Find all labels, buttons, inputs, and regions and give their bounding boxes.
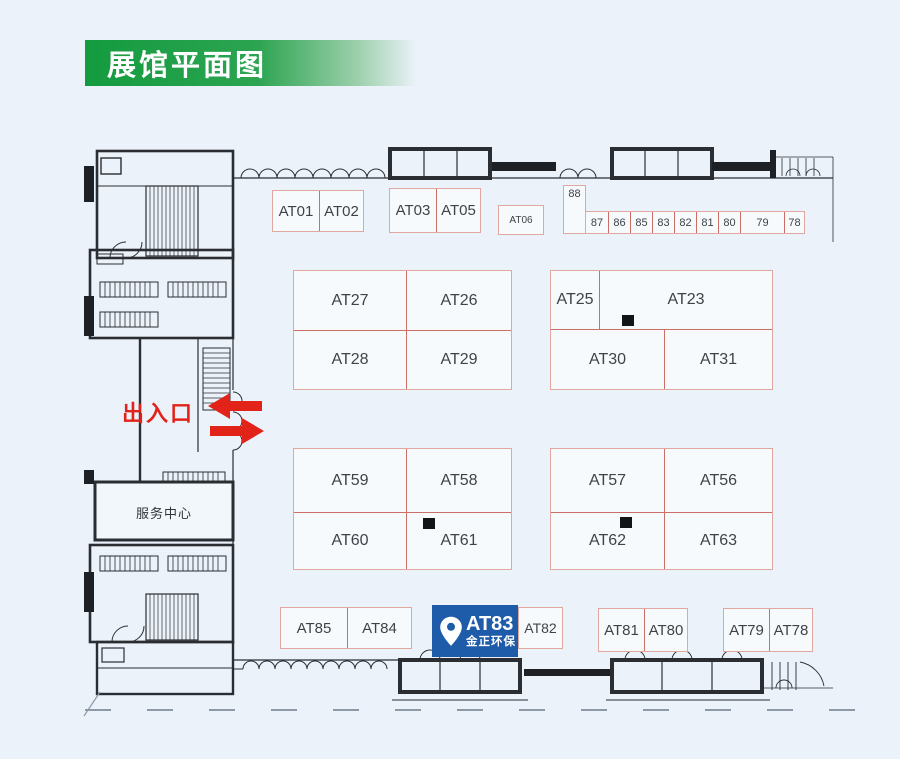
highlight-booth-code: AT83 bbox=[466, 614, 516, 634]
booth-label: AT31 bbox=[700, 351, 737, 369]
booth-label: AT85 bbox=[297, 620, 332, 637]
booth-label: AT03 bbox=[396, 202, 431, 219]
stairs-bottom bbox=[146, 594, 198, 640]
booth-81: 81 bbox=[696, 212, 718, 233]
booth-label: AT81 bbox=[604, 622, 639, 639]
road-dashes bbox=[84, 692, 880, 716]
booth-AT62: AT62 bbox=[551, 513, 664, 569]
booth-label: AT01 bbox=[279, 203, 314, 220]
booth-label: 85 bbox=[635, 217, 647, 229]
booth-block-bottom-b: AT81AT80 bbox=[598, 608, 688, 652]
booth-AT60: AT60 bbox=[294, 513, 406, 569]
booth-79: 79 bbox=[740, 212, 784, 233]
stairs-top bbox=[146, 186, 198, 256]
booth-label: AT30 bbox=[589, 351, 626, 369]
booth-label: AT28 bbox=[331, 351, 368, 369]
booth-block-bottom-a: AT85AT84 bbox=[280, 607, 412, 649]
booth-AT28: AT28 bbox=[294, 331, 406, 389]
booth-block-top-b: AT03AT05 bbox=[389, 188, 481, 233]
booth-label: AT25 bbox=[556, 291, 593, 309]
booth-AT31: AT31 bbox=[664, 330, 772, 389]
booth-block-mid-left: AT27AT26AT28AT29 bbox=[293, 270, 512, 390]
restroom-upper bbox=[84, 250, 233, 338]
booth-block-mid-right: AT25AT23AT30AT31 bbox=[550, 270, 773, 390]
booth-AT85: AT85 bbox=[281, 608, 347, 648]
floorplan-canvas: 展馆平面图 出入口 服务中心 AT01AT02AT03AT05AT0688878… bbox=[0, 0, 900, 759]
booth-AT78: AT78 bbox=[769, 609, 812, 651]
booth-label: 80 bbox=[723, 217, 735, 229]
highlight-booth-at83: AT83 金正环保 bbox=[432, 605, 518, 657]
highlight-company: 金正环保 bbox=[466, 637, 516, 649]
booth-label: AT82 bbox=[524, 620, 556, 636]
booth-block-low-left: AT59AT58AT60AT61 bbox=[293, 448, 512, 570]
booth-label: AT61 bbox=[440, 532, 477, 550]
location-pin-icon bbox=[439, 616, 463, 647]
booth-AT57: AT57 bbox=[551, 449, 664, 512]
pillar-marker bbox=[622, 315, 634, 326]
booth-AT79: AT79 bbox=[724, 609, 769, 651]
highlight-text: AT83 金正环保 bbox=[466, 614, 516, 649]
booth-85: 85 bbox=[630, 212, 652, 233]
booth-AT05: AT05 bbox=[436, 189, 480, 232]
booth-80: 80 bbox=[718, 212, 740, 233]
booth-AT02: AT02 bbox=[319, 191, 363, 231]
wall-left-spine bbox=[233, 178, 242, 658]
booth-AT23: AT23 bbox=[599, 271, 772, 329]
title-banner: 展馆平面图 bbox=[85, 40, 417, 86]
booth-label: AT58 bbox=[440, 472, 477, 490]
booth-AT58: AT58 bbox=[406, 449, 511, 512]
booth-block-booth-88: 88 bbox=[563, 185, 586, 234]
entrance-exit-label: 出入口 bbox=[122, 396, 194, 428]
booth-label: 86 bbox=[613, 217, 625, 229]
booth-AT61: AT61 bbox=[406, 513, 511, 569]
booth-label: 78 bbox=[788, 217, 800, 229]
booth-label: AT80 bbox=[649, 622, 684, 639]
entrance-arrows bbox=[208, 393, 264, 444]
booth-label: AT23 bbox=[667, 291, 704, 309]
booth-AT56: AT56 bbox=[664, 449, 772, 512]
booth-83: 83 bbox=[652, 212, 674, 233]
booth-label: AT27 bbox=[331, 292, 368, 310]
booth-label: AT26 bbox=[440, 292, 477, 310]
booth-block-top-a: AT01AT02 bbox=[272, 190, 364, 232]
booth-label: AT29 bbox=[440, 351, 477, 369]
booth-block-bottom-c: AT79AT78 bbox=[723, 608, 813, 652]
booth-label: AT78 bbox=[774, 622, 809, 639]
booth-label: AT63 bbox=[700, 532, 737, 550]
booth-label: 83 bbox=[657, 217, 669, 229]
booth-86: 86 bbox=[608, 212, 630, 233]
booth-AT80: AT80 bbox=[644, 609, 687, 651]
wall-bottom bbox=[233, 650, 833, 700]
pillar-marker bbox=[423, 518, 435, 529]
booth-block-strip-87-78: 878685838281807978 bbox=[585, 211, 805, 234]
booth-label: 82 bbox=[679, 217, 691, 229]
booth-block-low-right: AT57AT56AT62AT63 bbox=[550, 448, 773, 570]
booth-label: AT59 bbox=[331, 472, 368, 490]
booth-78: 78 bbox=[784, 212, 804, 233]
booth-82: 82 bbox=[674, 212, 696, 233]
booth-label: AT84 bbox=[362, 620, 397, 637]
booth-label: 81 bbox=[701, 217, 713, 229]
booth-label: AT56 bbox=[700, 472, 737, 490]
booth-87: 87 bbox=[586, 212, 608, 233]
booth-AT82: AT82 bbox=[519, 608, 562, 648]
booth-AT26: AT26 bbox=[406, 271, 511, 330]
booth-label: 79 bbox=[756, 217, 768, 229]
booth-label: 87 bbox=[591, 217, 603, 229]
booth-label: AT60 bbox=[331, 532, 368, 550]
booth-label: AT02 bbox=[324, 203, 359, 220]
booth-AT01: AT01 bbox=[273, 191, 319, 231]
booth-AT84: AT84 bbox=[347, 608, 411, 648]
booth-label: AT79 bbox=[729, 622, 764, 639]
booth-block-bottom-82: AT82 bbox=[518, 607, 563, 649]
booth-label: AT06 bbox=[509, 215, 532, 226]
arrow-right-icon bbox=[210, 418, 264, 444]
booth-AT63: AT63 bbox=[664, 513, 772, 569]
booth-AT06: AT06 bbox=[499, 206, 543, 234]
pillar-marker bbox=[620, 517, 632, 528]
service-center-label: 服务中心 bbox=[95, 503, 233, 522]
booth-label: AT05 bbox=[441, 202, 476, 219]
booth-label: 88 bbox=[568, 188, 580, 200]
booth-AT30: AT30 bbox=[551, 330, 664, 389]
booth-AT59: AT59 bbox=[294, 449, 406, 512]
booth-AT25: AT25 bbox=[551, 271, 599, 329]
booth-label: AT62 bbox=[589, 532, 626, 550]
booth-AT29: AT29 bbox=[406, 331, 511, 389]
booth-AT27: AT27 bbox=[294, 271, 406, 330]
arrow-left-icon bbox=[208, 393, 262, 419]
booth-AT81: AT81 bbox=[599, 609, 644, 651]
page-title: 展馆平面图 bbox=[85, 42, 267, 84]
booth-label: AT57 bbox=[589, 472, 626, 490]
booth-block-top-c: AT06 bbox=[498, 205, 544, 235]
booth-88: 88 bbox=[564, 186, 585, 233]
booth-AT03: AT03 bbox=[390, 189, 436, 232]
